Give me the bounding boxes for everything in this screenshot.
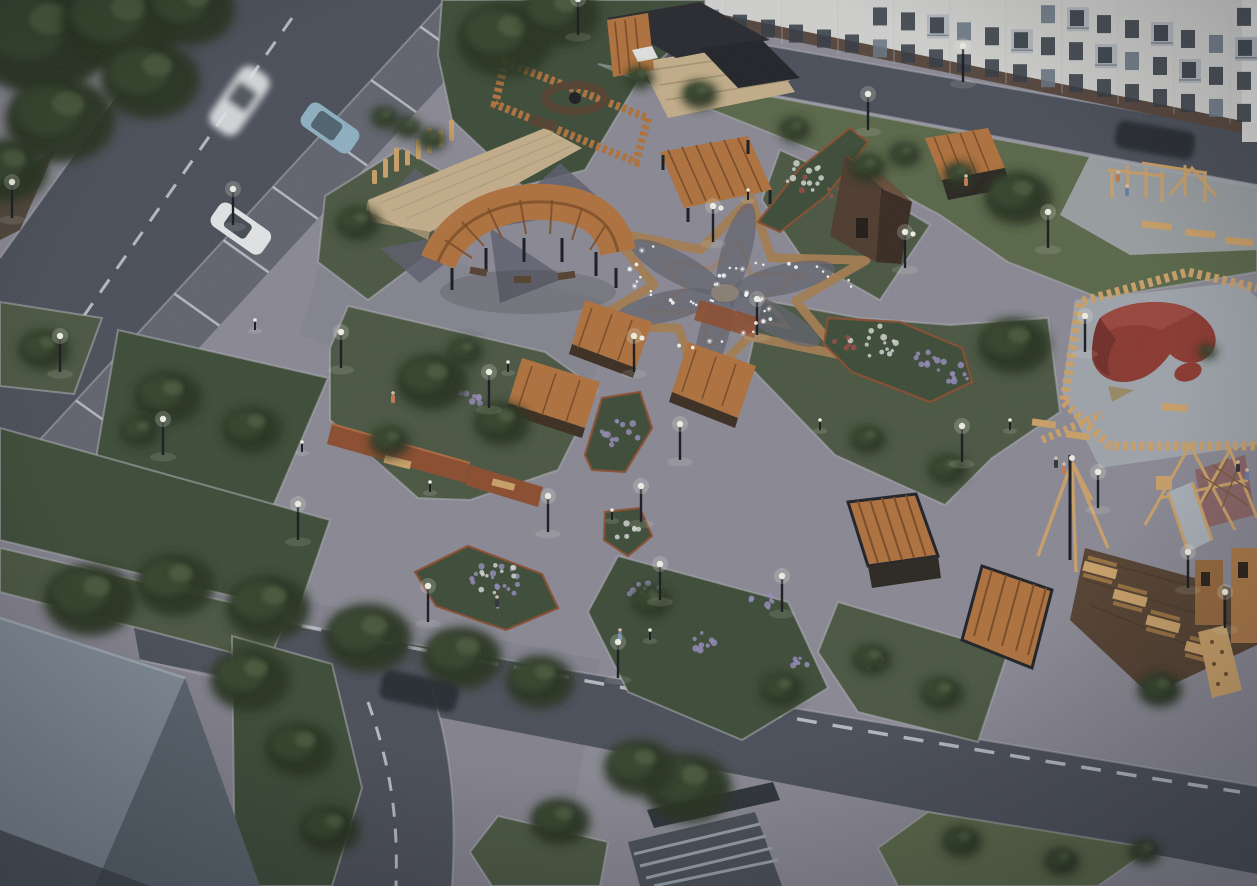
vignette: [0, 0, 1257, 886]
aerial-park-render: Aerial dusk rendering of a landscaped re…: [0, 0, 1257, 886]
render-canvas: Aerial dusk rendering of a landscaped re…: [0, 0, 1257, 886]
